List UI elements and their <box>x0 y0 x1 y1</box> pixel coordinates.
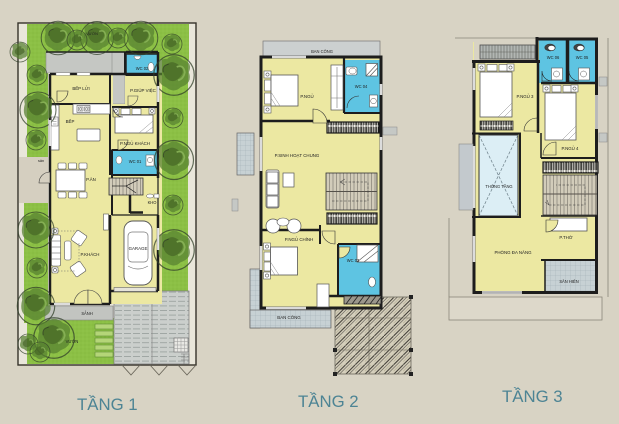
svg-text:KHO: KHO <box>148 200 157 205</box>
svg-text:P.ĂN: P.ĂN <box>86 177 96 182</box>
svg-text:P.NGỦ 4: P.NGỦ 4 <box>562 146 580 151</box>
svg-text:P.NGỦ 3: P.NGỦ 3 <box>517 94 535 99</box>
svg-text:sân: sân <box>38 159 44 163</box>
svg-text:WC 01: WC 01 <box>129 159 142 164</box>
svg-text:P.SINH HOẠT CHUNG: P.SINH HOẠT CHUNG <box>275 153 320 158</box>
svg-text:WC 02: WC 02 <box>136 66 149 71</box>
svg-text:P.NGỦ CHÍNH: P.NGỦ CHÍNH <box>285 237 313 242</box>
svg-text:P.NGỦ KHÁCH: P.NGỦ KHÁCH <box>120 141 150 146</box>
svg-text:GARAGE: GARAGE <box>129 246 148 251</box>
svg-text:P.GIÚP VIỆC: P.GIÚP VIỆC <box>130 88 156 93</box>
svg-text:PHÒNG ĐA NĂNG: PHÒNG ĐA NĂNG <box>494 250 532 255</box>
svg-text:SÂN HIÊN: SÂN HIÊN <box>559 279 578 284</box>
svg-text:WC 05: WC 05 <box>576 55 589 60</box>
svg-text:BAN CÔNG: BAN CÔNG <box>311 49 333 54</box>
svg-text:WC 03: WC 03 <box>347 258 360 263</box>
svg-text:SẢNH: SẢNH <box>81 311 92 316</box>
svg-text:THÔNG TẦNG: THÔNG TẦNG <box>485 184 512 189</box>
svg-text:BAN CÔNG: BAN CÔNG <box>277 315 301 320</box>
svg-text:WC 04: WC 04 <box>355 84 368 89</box>
svg-text:WC 06: WC 06 <box>547 55 560 60</box>
svg-text:P.KHÁCH: P.KHÁCH <box>81 252 100 257</box>
svg-text:P.THỜ: P.THỜ <box>559 235 572 240</box>
svg-text:VƯỜN: VƯỜN <box>66 339 79 344</box>
svg-text:VƯỜN: VƯỜN <box>86 31 98 36</box>
svg-text:BẾP LỬI: BẾP LỬI <box>72 86 89 91</box>
svg-text:P.NGỦ: P.NGỦ <box>300 94 313 99</box>
svg-text:BẾP: BẾP <box>66 119 75 124</box>
